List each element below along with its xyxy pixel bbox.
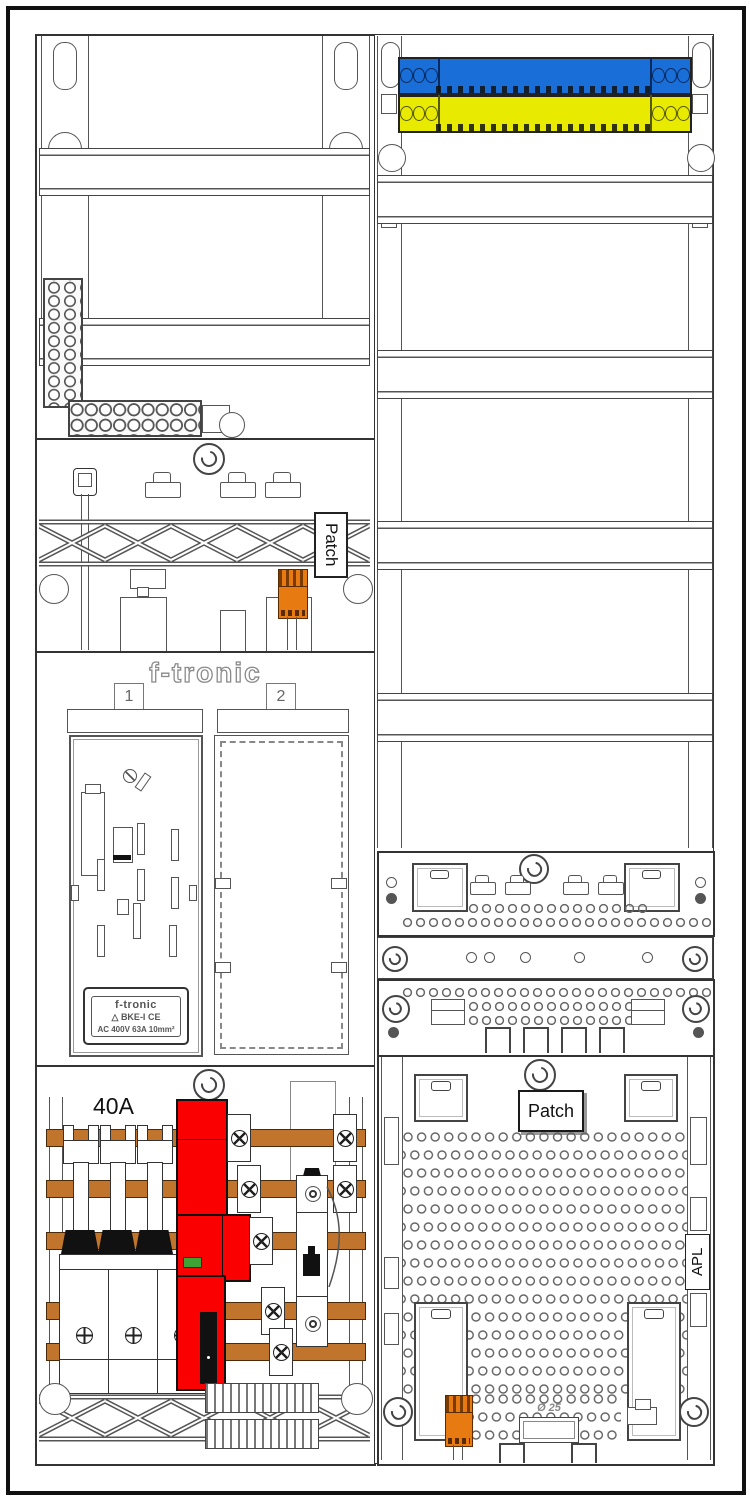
apl-section: Patch APL Ø 25 [377,1055,715,1466]
wire-curve [323,1187,347,1287]
vent-holes-row [401,917,713,928]
mounting-rail [377,937,713,979]
rj45-jack-icon [598,875,622,895]
neutral-busbar-blue [398,57,692,95]
sls-switch-wide [176,1214,251,1282]
keyhole-screw-icon [682,946,708,972]
multimedia-panel-top [377,851,715,937]
connector-wires [453,1445,463,1460]
connector-wires [287,617,297,650]
rj45-jack-icon [220,472,254,498]
hook-icon [135,772,152,791]
cable-clamp-icon [599,1027,625,1053]
keyhole-screw-icon [193,443,225,475]
module-cutout [412,863,468,912]
multimedia-panel-bottom [377,979,715,1057]
device-outline [220,610,246,651]
keyhole-screw-icon [383,1397,413,1427]
terminal-screw-icon [76,1327,93,1344]
busbar-screw-terminal [269,1328,293,1376]
rail-slot [53,42,77,90]
busbar-screw-terminal [237,1165,261,1213]
terminal-comb-row [205,1419,319,1449]
mounting-hole [219,412,245,438]
cable-clamp-icon [485,1027,511,1053]
terminal-comb-row [205,1383,319,1413]
module-cutout [414,1074,468,1122]
rj45-plug-icon [73,468,97,496]
rj45-jack-icon [470,875,494,895]
wago-connector-orange [278,569,308,619]
vent-holes-row [467,1001,649,1012]
meter-field-1: f-tronic △ BKE-I CE AC 400V 63A 10mm² [69,735,203,1057]
plate-brand: f-tronic [97,999,174,1011]
module-cutout [624,1074,678,1122]
plate-ratings: AC 400V 63A 10mm² [97,1025,174,1034]
terminal-screw-icon [125,1327,142,1344]
cable-clamp-icon [523,1027,549,1053]
plate-model: BKE-I [121,1012,146,1022]
fuse-cap-1 [61,1230,99,1254]
din-rail [377,350,713,399]
left-top-section [35,34,376,442]
patch-label-right: Patch [518,1090,584,1132]
busbar-screw-terminal [333,1114,357,1162]
field1-number: 1 [114,683,144,711]
brand-logo-text: f-tronic [37,657,374,689]
rj45-jack-icon [145,472,179,498]
field1-header-bar [67,709,203,733]
busbar-screw-terminal [227,1114,251,1162]
rail-slot [334,42,358,90]
mounting-hole [343,574,373,604]
screw-icon [123,769,137,783]
terminal-block-horizontal [68,400,202,437]
plate-ce: CE [148,1012,161,1022]
wago-connector-orange [445,1395,473,1447]
clip-connector-icon [130,569,166,589]
fuse-cap-2 [98,1230,136,1254]
meter-field-2 [214,735,349,1055]
vent-holes-row [401,987,713,998]
meter-detail [85,784,101,794]
conduit-stub [519,1417,579,1443]
din-rail [39,148,370,196]
breaker-rating-label: 40A [93,1093,134,1120]
device-outline [120,597,167,651]
conduit-diameter-label: Ø 25 [519,1402,579,1414]
sls-toggle-black [200,1312,217,1384]
breaker-toggle [303,1254,320,1276]
din-rail [39,318,370,366]
cable-clamp-icon [561,1027,587,1053]
keyhole-screw-icon [382,946,408,972]
din-rail [377,175,713,224]
keystone-blank [631,999,665,1025]
keyhole-screw-icon [524,1059,556,1091]
vent-holes-row [467,903,649,914]
bke-label-plate: f-tronic △ BKE-I CE AC 400V 63A 10mm² [83,987,189,1045]
left-patch-section: Patch [35,438,376,654]
sls-section: 40A [35,1065,376,1466]
rj45-jack-icon [563,875,587,895]
keyhole-screw-icon [682,995,710,1023]
din-rail [377,521,713,570]
rj45-jack-icon [265,472,299,498]
keyhole-screw-icon [382,995,410,1023]
field2-inner-frame [220,741,343,1049]
terminal-block-vertical [43,278,83,408]
din-rail [377,693,713,742]
mounting-hole [39,1383,71,1415]
keyhole-screw-icon [193,1069,225,1101]
field2-header-bar [217,709,349,733]
meter-section: f-tronic 1 2 f-tronic [35,651,376,1067]
meter-slot-dark [113,855,131,860]
cable-clamp-icon [499,1443,525,1463]
vent-holes-row [467,1015,649,1026]
cable-clamp-icon [571,1443,597,1463]
sls-indicator-led [183,1257,202,1268]
rj45-jack-icon [505,875,529,895]
field2-number: 2 [266,683,296,711]
plate-logo: △ [112,1012,119,1022]
busbar-screw-terminal [249,1217,273,1265]
apl-label: APL [685,1234,710,1290]
clip-connector-foot [137,587,149,597]
bracket-step-top [635,1399,651,1410]
patch-label-left: Patch [314,512,348,578]
pe-busbar-yellow [398,95,692,133]
mounting-hole [341,1383,373,1415]
fuse-cap-3 [135,1230,173,1254]
mounting-hole [39,574,69,604]
keyhole-screw-icon [679,1397,709,1427]
keystone-blank [431,999,465,1025]
schematic-canvas: Patch f-tronic 1 2 [0,0,750,1497]
